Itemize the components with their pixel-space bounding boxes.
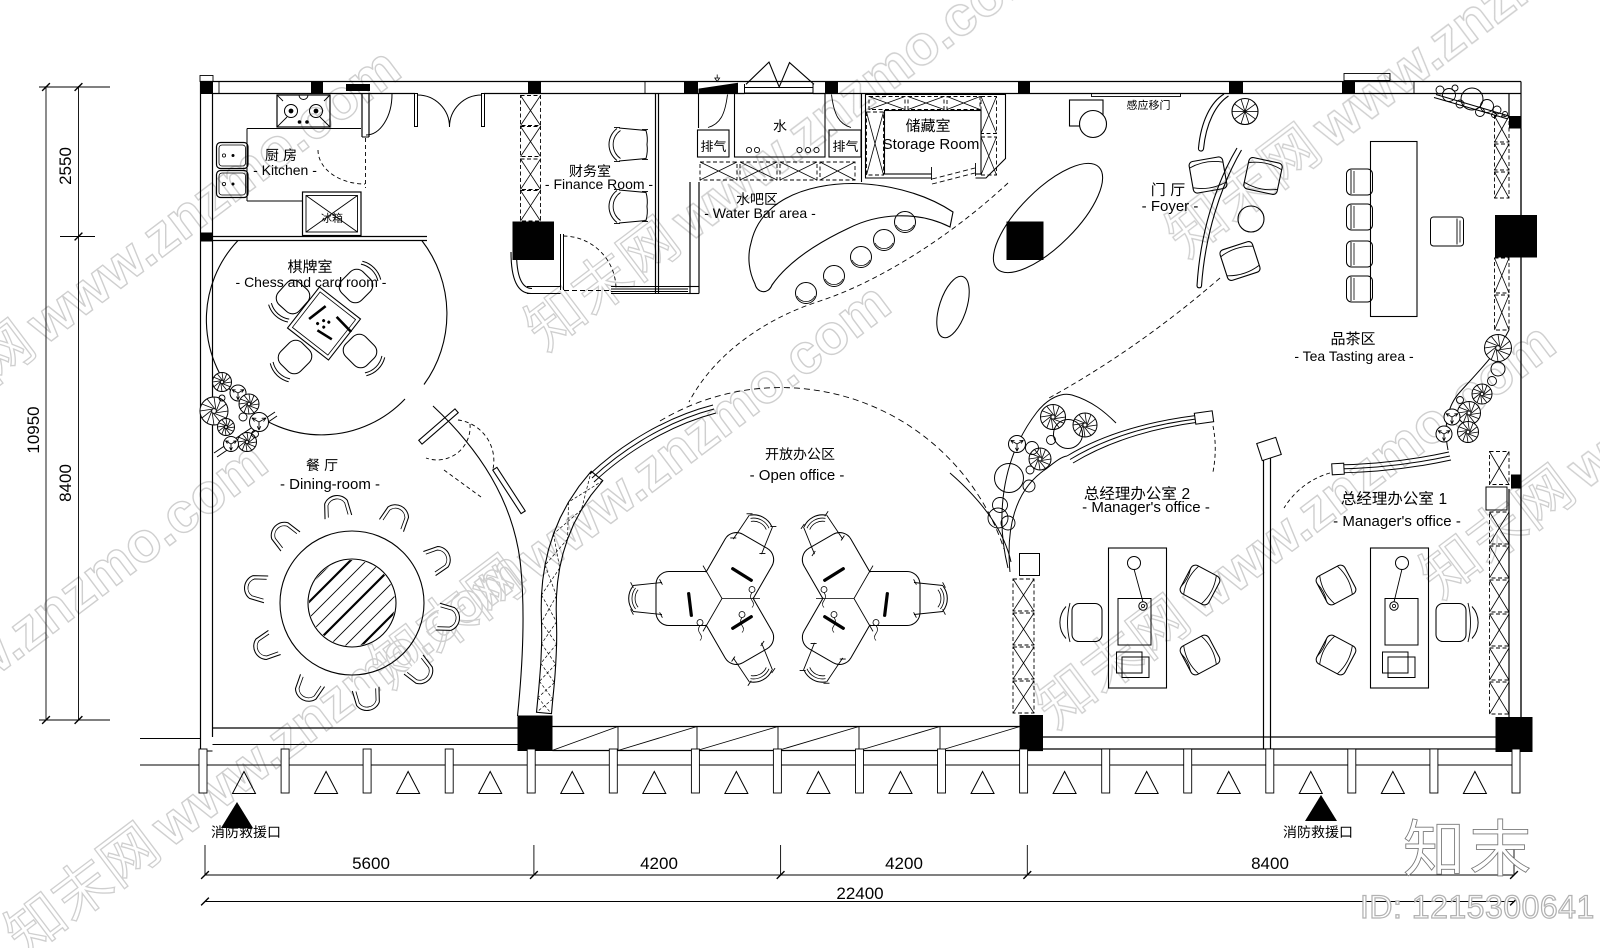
svg-text:- Finance Room -: - Finance Room - [545, 176, 653, 192]
svg-text:- Dining-room -: - Dining-room - [280, 476, 380, 493]
svg-text:5600: 5600 [352, 854, 390, 873]
svg-text:8400: 8400 [56, 464, 75, 502]
svg-text:22400: 22400 [836, 884, 883, 903]
svg-text:ID: 1215300641: ID: 1215300641 [1360, 889, 1595, 925]
svg-text:- Open office -: - Open office - [750, 467, 845, 484]
svg-text:- Chess and card room -: - Chess and card room - [236, 274, 387, 290]
svg-text:- Water Bar area -: - Water Bar area - [704, 205, 816, 221]
svg-text:- Foyer -: - Foyer - [1142, 198, 1199, 215]
svg-text:- Manager's office -: - Manager's office - [1082, 499, 1210, 516]
svg-text:- Manager's office -: - Manager's office - [1333, 513, 1461, 530]
svg-text:- Kitchen -: - Kitchen - [253, 162, 317, 178]
svg-text:8400: 8400 [1251, 854, 1289, 873]
svg-text:10950: 10950 [24, 406, 43, 453]
svg-text:4200: 4200 [640, 854, 678, 873]
svg-text:- Tea Tasting area -: - Tea Tasting area - [1294, 348, 1414, 364]
svg-text:Storage Room: Storage Room [883, 136, 980, 153]
svg-text:2550: 2550 [56, 147, 75, 185]
svg-text:4200: 4200 [885, 854, 923, 873]
svg-text:1: 1 [1438, 491, 1447, 508]
